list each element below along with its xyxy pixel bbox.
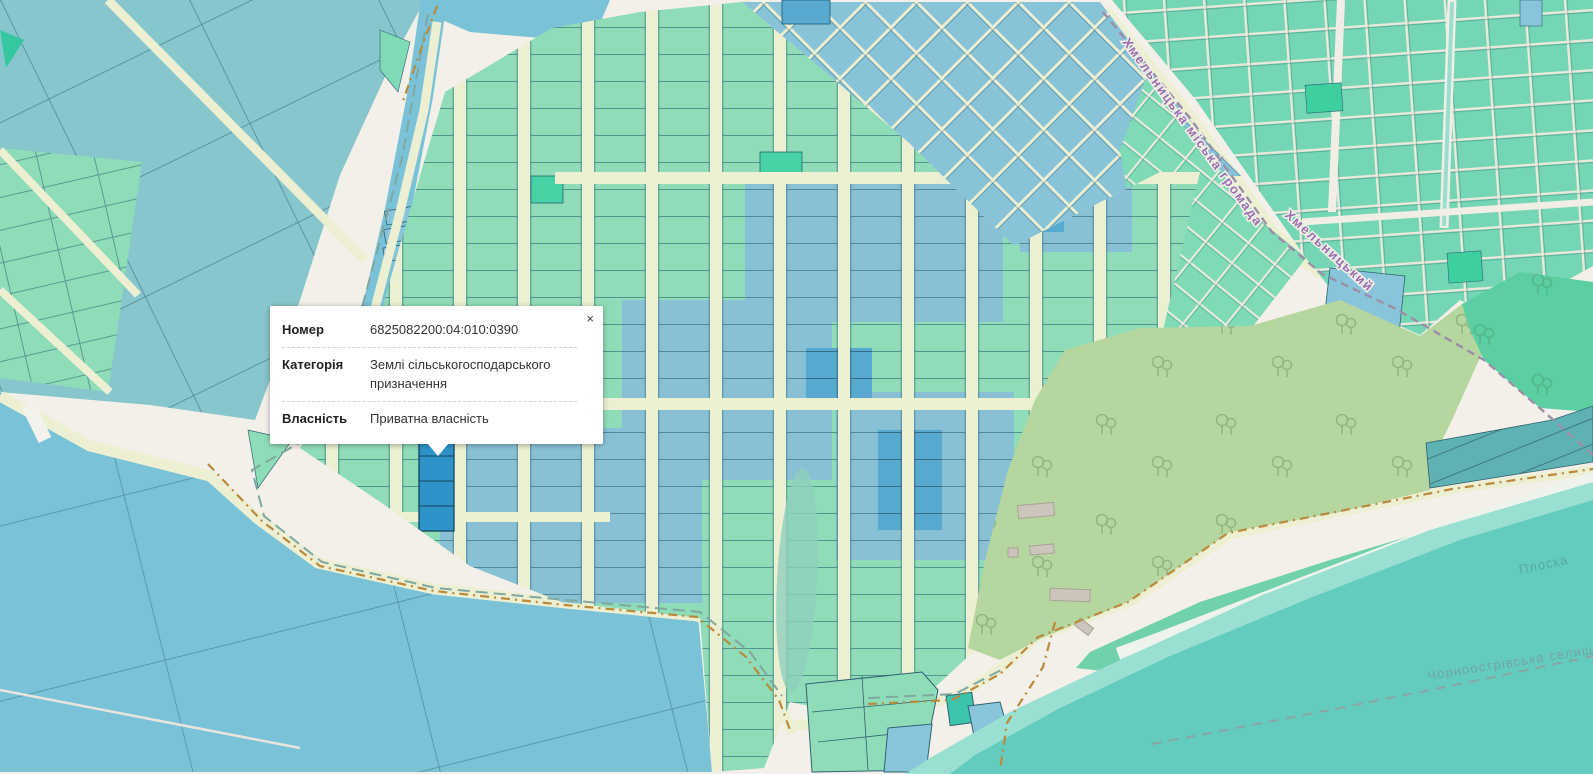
parcel-accent[interactable]	[1305, 83, 1343, 113]
map-viewport[interactable]: Хмельницька міська громада Хмельницький …	[0, 0, 1593, 774]
popup-label: Номер	[282, 320, 370, 340]
popup-row-ownership: Власність Приватна власність	[282, 407, 577, 431]
parcel-info-popup: × Номер 6825082200:04:010:0390 Категорія…	[270, 306, 603, 444]
popup-pointer	[427, 443, 449, 456]
popup-row-number: Номер 6825082200:04:010:0390	[282, 318, 577, 342]
popup-value-cadastral-number: 6825082200:04:010:0390	[370, 320, 577, 340]
parcel-accent[interactable]	[1447, 251, 1483, 283]
map-canvas[interactable]: Хмельницька міська громада Хмельницький …	[0, 0, 1593, 774]
popup-close-button[interactable]: ×	[584, 310, 596, 327]
popup-divider	[282, 401, 577, 402]
parcel-blue[interactable]	[1520, 0, 1542, 26]
parcel-dark-blue[interactable]	[782, 0, 830, 24]
popup-divider	[282, 347, 577, 348]
popup-value-ownership: Приватна власність	[370, 409, 577, 429]
popup-label: Категорія	[282, 355, 370, 394]
popup-value-category: Землі сільськогосподарського призначення	[370, 355, 577, 394]
popup-row-category: Категорія Землі сільськогосподарського п…	[282, 353, 577, 396]
popup-label: Власність	[282, 409, 370, 429]
